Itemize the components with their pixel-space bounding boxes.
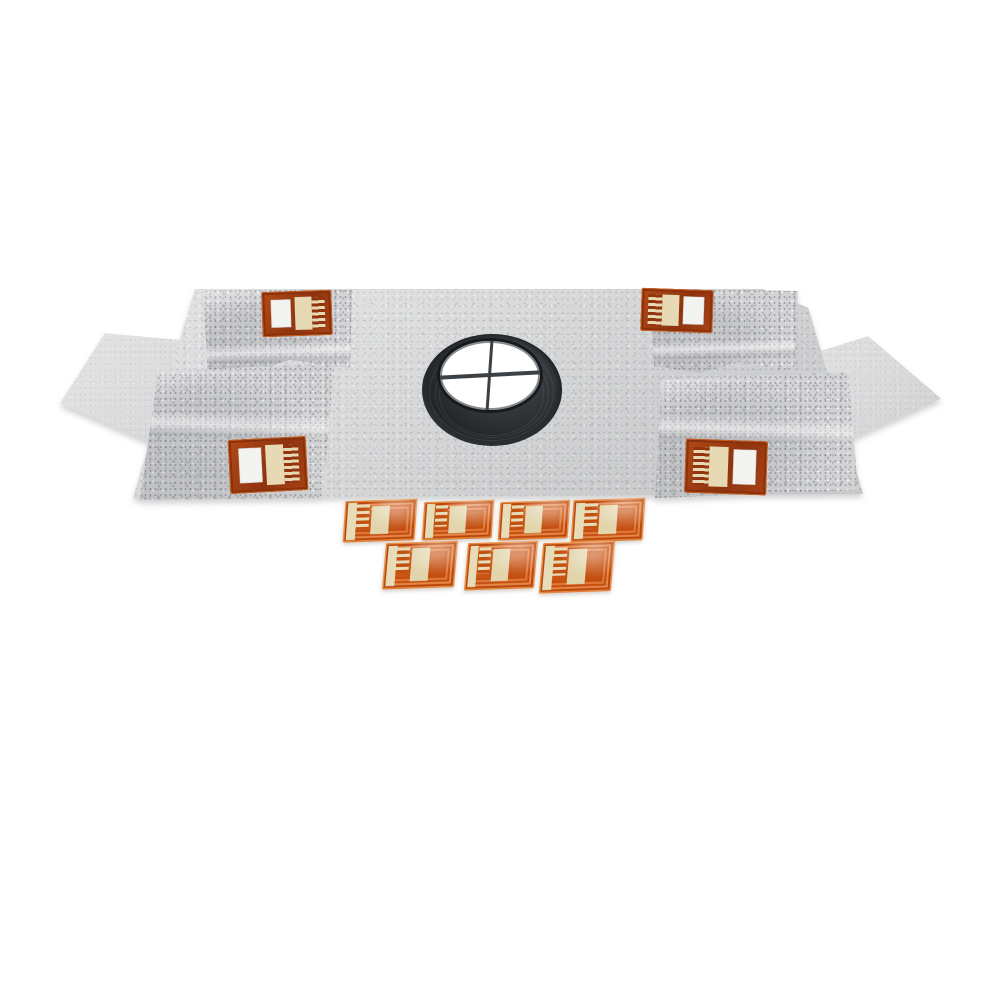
sensor-tag-7: [539, 541, 615, 594]
corner-tag-face: [228, 436, 309, 494]
corner-tag-face: [640, 288, 713, 333]
corner-sensor-tag-top-left: [261, 290, 333, 337]
tag-pad: [294, 296, 312, 330]
fold-crease: [203, 343, 352, 363]
corner-tag-face: [261, 290, 333, 337]
corner-tag-face: [684, 439, 768, 496]
tag-contact-fingers: [693, 447, 710, 485]
corner-sensor-tag-top-right: [640, 288, 713, 333]
tag-window: [682, 297, 704, 325]
tag-gloss: [464, 541, 538, 591]
drain-opening: [440, 341, 539, 410]
tag-gloss: [343, 499, 418, 543]
sensor-tag-1: [343, 499, 418, 543]
fold-crease: [647, 340, 799, 359]
tag-gloss: [498, 500, 571, 541]
sensor-tag-5: [382, 541, 458, 590]
corner-sensor-tag-bottom-right: [684, 439, 768, 496]
sensor-tag-4: [571, 498, 646, 543]
tag-gloss: [422, 500, 495, 541]
tag-window: [271, 299, 292, 328]
tag-gloss: [571, 498, 646, 543]
fold-crease: [138, 413, 336, 438]
tag-pad: [265, 444, 286, 485]
product-photo-scene: [0, 0, 1000, 1000]
fold-crease: [653, 418, 860, 442]
tag-window: [238, 448, 262, 484]
tag-window: [732, 449, 757, 484]
tag-pad: [708, 446, 729, 487]
drain-collar: [422, 334, 562, 446]
tag-contact-fingers: [311, 297, 325, 329]
tag-contact-fingers: [648, 294, 663, 325]
tag-gloss: [539, 541, 615, 594]
membrane-assembly: [0, 0, 1000, 1000]
sensor-tag-3: [498, 500, 571, 541]
sensor-tag-6: [464, 541, 538, 591]
sensor-tag-2: [422, 500, 495, 541]
tag-contact-fingers: [283, 444, 300, 483]
corner-sensor-tag-bottom-left: [228, 436, 309, 494]
tag-pad: [661, 294, 679, 326]
tag-gloss: [382, 541, 458, 590]
